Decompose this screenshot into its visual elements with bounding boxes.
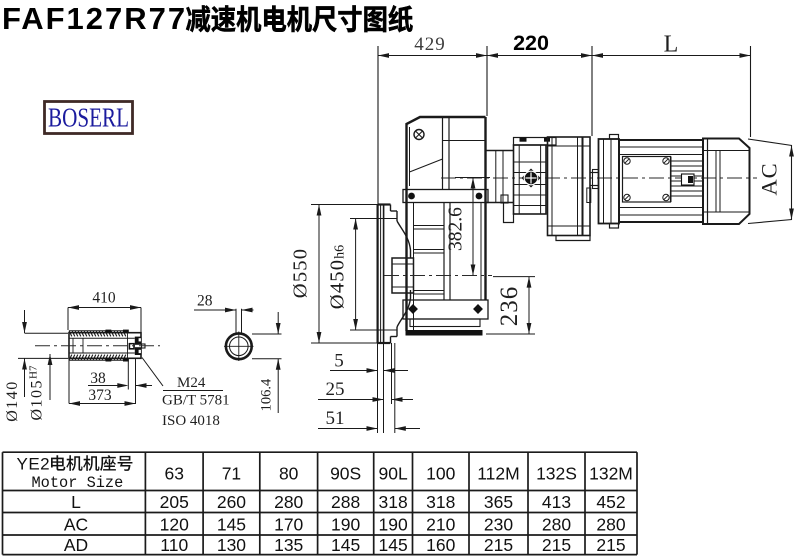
svg-text:288: 288 xyxy=(331,492,360,512)
svg-text:63: 63 xyxy=(165,464,184,484)
svg-text:130: 130 xyxy=(217,535,246,555)
svg-text:AC: AC xyxy=(64,515,88,535)
svg-text:28: 28 xyxy=(197,293,213,310)
svg-text:280: 280 xyxy=(542,515,571,535)
svg-text:110: 110 xyxy=(160,535,188,555)
svg-text:413: 413 xyxy=(542,492,571,512)
svg-text:210: 210 xyxy=(426,515,455,535)
svg-text:260: 260 xyxy=(217,492,246,512)
svg-text:190: 190 xyxy=(378,515,407,535)
svg-text:Motor Size: Motor Size xyxy=(32,474,124,492)
svg-text:382.6: 382.6 xyxy=(446,207,467,251)
svg-text:GB/T 5781: GB/T 5781 xyxy=(162,393,230,409)
svg-text:5: 5 xyxy=(334,351,344,372)
svg-text:51: 51 xyxy=(326,408,345,429)
svg-text:373: 373 xyxy=(88,387,112,404)
svg-text:25: 25 xyxy=(326,379,345,400)
svg-text:215: 215 xyxy=(596,535,625,555)
svg-text:132S: 132S xyxy=(536,464,577,484)
svg-text:160: 160 xyxy=(426,535,455,555)
svg-text:205: 205 xyxy=(160,492,189,512)
svg-text:L: L xyxy=(664,32,679,58)
svg-text:AD: AD xyxy=(64,535,88,555)
svg-text:135: 135 xyxy=(274,535,303,555)
svg-text:ISO 4018: ISO 4018 xyxy=(162,413,220,429)
svg-text:230: 230 xyxy=(484,515,513,535)
svg-text:71: 71 xyxy=(222,464,241,484)
svg-text:190: 190 xyxy=(331,515,360,535)
svg-text:FAF127R77: FAF127R77 xyxy=(2,1,187,36)
svg-text:318: 318 xyxy=(378,492,407,512)
svg-text:90L: 90L xyxy=(378,464,407,484)
svg-text:Ø550: Ø550 xyxy=(290,248,312,298)
svg-text:452: 452 xyxy=(596,492,625,512)
svg-text:429: 429 xyxy=(414,34,446,55)
svg-text:220: 220 xyxy=(513,31,549,55)
svg-text:410: 410 xyxy=(92,290,116,307)
svg-text:Ø140: Ø140 xyxy=(4,380,21,422)
svg-text:AC: AC xyxy=(757,162,782,195)
svg-text:318: 318 xyxy=(426,492,455,512)
svg-text:YE2: YE2 xyxy=(17,455,51,474)
svg-text:145: 145 xyxy=(378,535,407,555)
svg-text:132M: 132M xyxy=(589,464,633,484)
svg-text:BOSERL: BOSERL xyxy=(48,103,129,133)
svg-text:90S: 90S xyxy=(330,464,361,484)
svg-text:215: 215 xyxy=(484,535,513,555)
svg-text:120: 120 xyxy=(160,515,189,535)
svg-text:215: 215 xyxy=(542,535,571,555)
svg-text:L: L xyxy=(71,492,81,512)
svg-text:100: 100 xyxy=(426,464,455,484)
svg-text:280: 280 xyxy=(274,492,303,512)
svg-text:38: 38 xyxy=(90,370,106,387)
svg-text:106.4: 106.4 xyxy=(259,378,275,411)
svg-text:365: 365 xyxy=(484,492,513,512)
svg-text:280: 280 xyxy=(596,515,625,535)
svg-text:M24: M24 xyxy=(177,375,206,391)
svg-text:145: 145 xyxy=(331,535,360,555)
svg-text:170: 170 xyxy=(274,515,303,535)
svg-text:112M: 112M xyxy=(477,464,519,484)
svg-text:145: 145 xyxy=(217,515,246,535)
svg-text:236: 236 xyxy=(496,286,523,327)
svg-text:80: 80 xyxy=(279,464,299,484)
